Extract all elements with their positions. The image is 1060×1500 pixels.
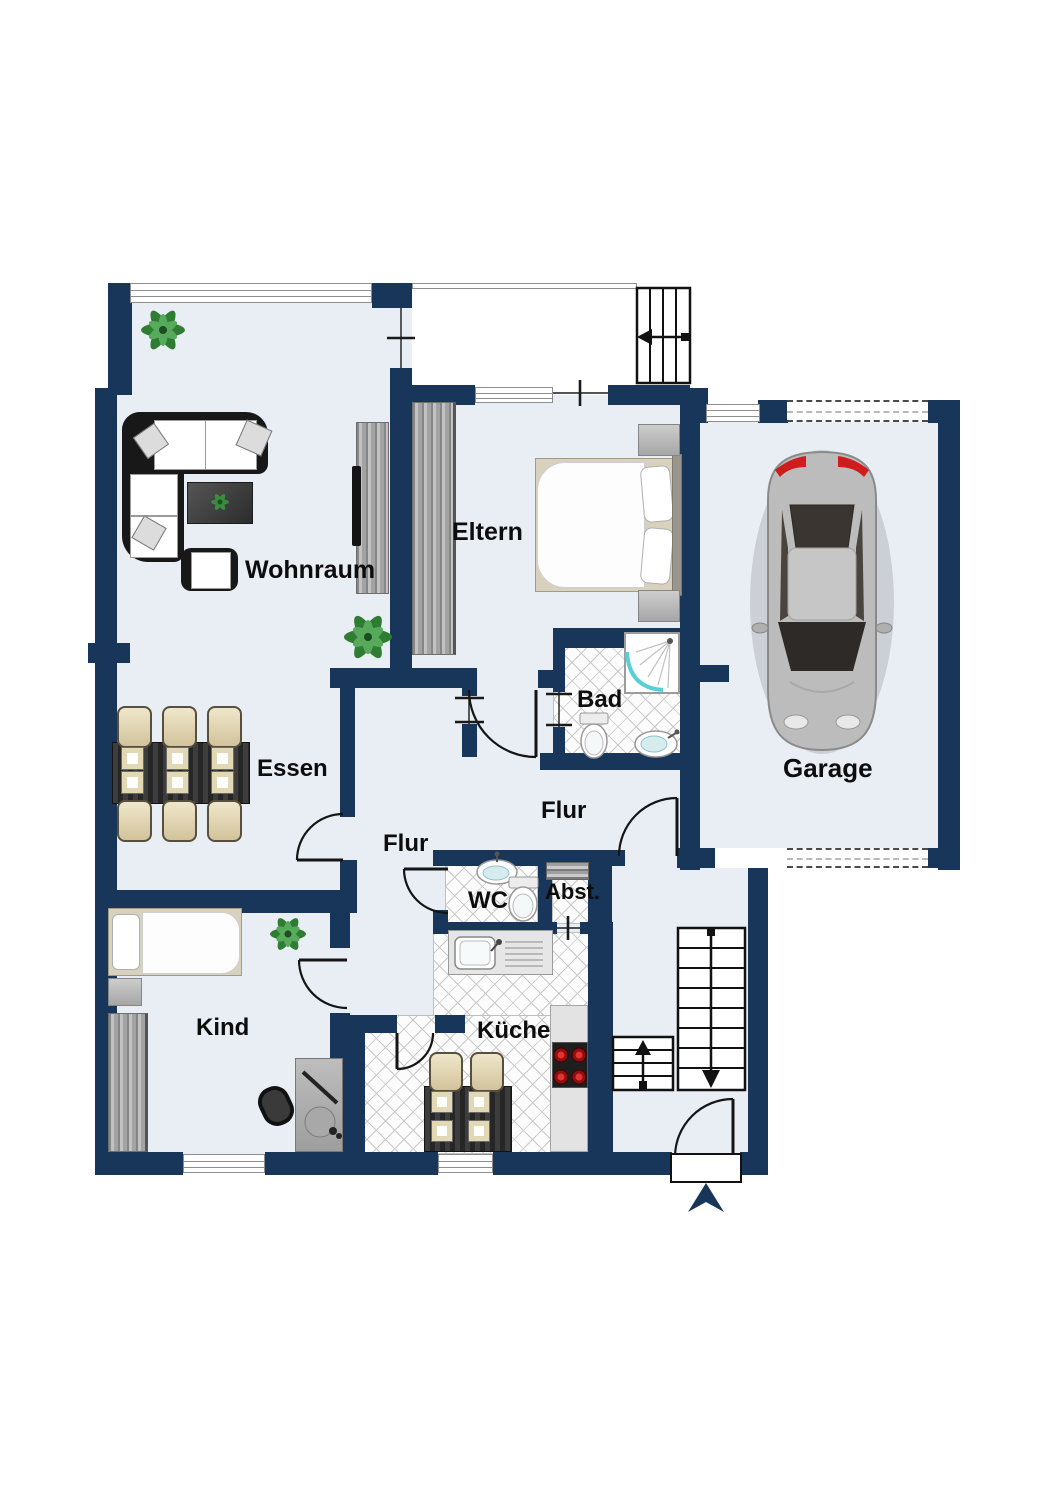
wall-segment	[680, 848, 715, 868]
wall-segment	[265, 1152, 438, 1175]
garage-door-top	[787, 400, 928, 422]
armchair-seat	[191, 552, 231, 589]
dining-chair	[117, 706, 152, 748]
room-label-abstellraum: Abst.	[545, 879, 600, 905]
wall-segment	[540, 753, 683, 770]
wall-segment	[330, 890, 350, 948]
room-label-kind: Kind	[196, 1014, 249, 1042]
room-label-wohnraum: Wohnraum	[245, 556, 375, 585]
bed-eltern-duvet	[537, 462, 645, 588]
tv	[352, 466, 361, 546]
wall-segment	[350, 1033, 365, 1152]
wall-segment	[433, 850, 625, 866]
wall-segment	[330, 668, 477, 688]
placemat	[432, 1121, 452, 1141]
room-label-kueche: Küche	[477, 1017, 550, 1045]
wall-segment	[608, 385, 690, 405]
nightstand	[638, 590, 680, 622]
sofa-seat	[130, 474, 178, 516]
wall-segment	[493, 1152, 672, 1175]
garage-bay-gap	[715, 848, 787, 868]
entrance-arrow-icon	[688, 1183, 724, 1212]
placemat	[469, 1092, 489, 1112]
shelf-abstellraum	[546, 862, 589, 880]
wall-segment	[553, 628, 683, 648]
placemat	[432, 1092, 452, 1112]
wall-segment	[372, 283, 412, 308]
wall-segment	[938, 400, 960, 870]
bed-pillow	[640, 527, 675, 585]
wall-segment	[928, 848, 960, 868]
stove	[552, 1042, 588, 1088]
floor-stairhall	[605, 860, 755, 1160]
placemat	[167, 772, 188, 793]
floorplan: Wohnraum Eltern Garage Bad Flur Flur Ess…	[0, 0, 1060, 1500]
wall-segment	[680, 400, 700, 870]
kitchen-chair	[429, 1052, 463, 1092]
bed-pillow	[640, 465, 675, 523]
nightstand-kind	[108, 978, 142, 1006]
placemat	[212, 748, 233, 769]
room-label-flur-upper: Flur	[541, 797, 586, 825]
dining-chair	[117, 800, 152, 842]
wall-segment	[538, 670, 553, 688]
terrace-edge	[412, 283, 637, 289]
kitchen-chair	[470, 1052, 504, 1092]
placemat	[122, 772, 143, 793]
garage-door-bottom	[787, 848, 928, 868]
room-label-wc: WC	[468, 887, 508, 915]
wardrobe-eltern	[412, 402, 456, 655]
wall-segment	[748, 868, 768, 1175]
room-label-garage: Garage	[783, 753, 873, 784]
placemat	[167, 748, 188, 769]
window-garage	[706, 404, 760, 422]
placemat	[212, 772, 233, 793]
dining-chair	[162, 800, 197, 842]
dining-chair	[207, 706, 242, 748]
room-label-flur-lower: Flur	[383, 830, 428, 858]
room-label-essen: Essen	[257, 755, 328, 783]
wall-segment	[350, 1015, 397, 1033]
wall-segment	[553, 727, 565, 753]
placemat	[469, 1121, 489, 1141]
wall-segment	[340, 687, 355, 817]
wardrobe-kind	[108, 1013, 148, 1152]
nightstand	[638, 424, 680, 456]
wall-segment	[88, 643, 130, 663]
wall-segment	[108, 283, 132, 395]
window-eltern	[475, 387, 553, 403]
window-wohnraum	[130, 283, 372, 303]
wall-segment	[435, 1015, 465, 1033]
room-label-eltern: Eltern	[452, 518, 523, 547]
window-kueche	[438, 1154, 493, 1173]
wall-segment	[390, 368, 412, 670]
dining-chair	[207, 800, 242, 842]
dining-chair	[162, 706, 197, 748]
wall-segment	[588, 922, 613, 1152]
bed-headboard	[672, 454, 682, 596]
staircase-exterior	[637, 288, 690, 383]
bed-kind-duvet	[142, 912, 240, 974]
desk-kind	[295, 1058, 343, 1152]
coffee-table	[187, 482, 253, 524]
wall-segment	[553, 648, 565, 692]
wall-segment	[758, 400, 788, 423]
room-label-bad: Bad	[577, 686, 622, 714]
bed-kind-pillow	[112, 914, 140, 970]
wall-segment	[462, 688, 477, 696]
kitchen-sink-unit	[448, 930, 553, 975]
wall-segment	[740, 1152, 768, 1175]
wall-segment	[695, 665, 729, 682]
wall-segment	[95, 1152, 183, 1175]
wall-segment	[462, 724, 477, 757]
placemat	[122, 748, 143, 769]
window-kind	[183, 1154, 265, 1173]
